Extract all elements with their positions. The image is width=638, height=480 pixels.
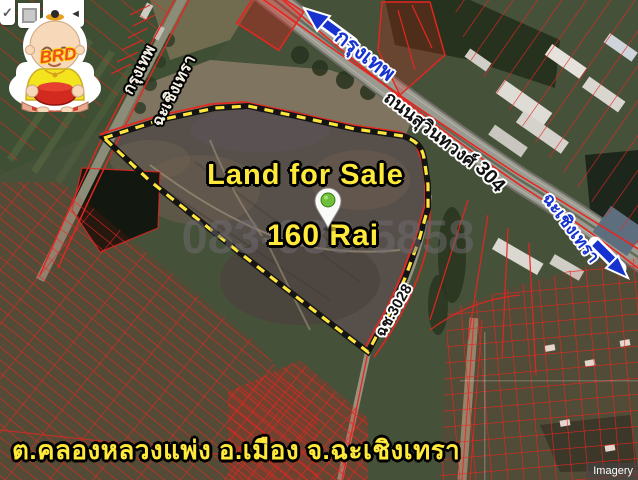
imagery-attribution: Imagery xyxy=(586,463,638,480)
location-caption: ต.คลองหลวงแพ่ง อ.เมือง จ.ฉะเชิงเทรา xyxy=(12,437,460,463)
seller-logo: BRD xyxy=(2,8,108,112)
land-sale-map-screenshot: 083-088-5858 Land for Sale 160 Rai กรุงเ… xyxy=(0,0,638,480)
map-pin[interactable] xyxy=(306,184,352,234)
